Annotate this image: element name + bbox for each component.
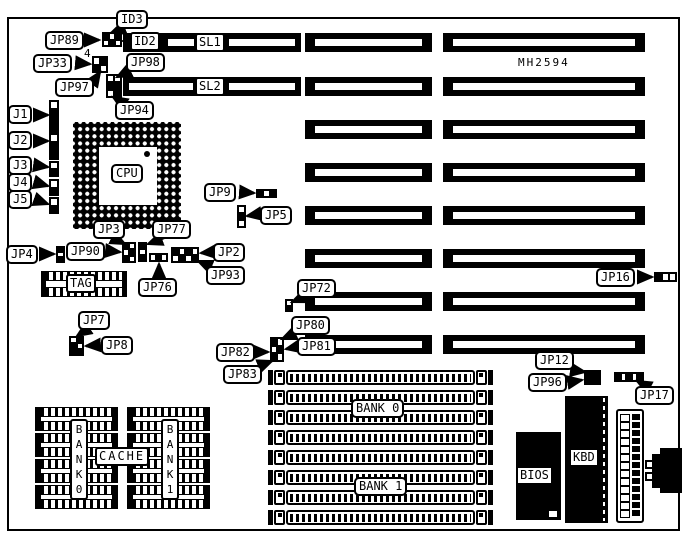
callout-jp80: JP80 bbox=[291, 316, 330, 335]
callout-jp83: JP83 bbox=[223, 365, 262, 384]
callout-leader bbox=[78, 63, 90, 64]
label-bios: BIOS bbox=[516, 466, 553, 485]
label-bank1-simm: BANK 1 bbox=[354, 477, 407, 496]
callout-leader bbox=[240, 192, 254, 193]
callout-id3: ID3 bbox=[116, 10, 148, 29]
callout-jp93: JP93 bbox=[206, 266, 245, 285]
callout-jp33: JP33 bbox=[33, 54, 72, 73]
callout-jp90: JP90 bbox=[66, 242, 105, 261]
callout-leader bbox=[572, 370, 585, 372]
callout-jp81: JP81 bbox=[297, 337, 336, 356]
label-cache: CACHE bbox=[95, 447, 149, 466]
callout-leader bbox=[77, 330, 86, 336]
callout-leader bbox=[34, 199, 48, 204]
callout-jp5: JP5 bbox=[260, 206, 292, 225]
label-cpu: CPU bbox=[111, 164, 143, 183]
callout-leader bbox=[201, 252, 212, 253]
label-bank1-chips: B A N K 1 bbox=[161, 419, 179, 500]
callout-leader bbox=[286, 347, 296, 349]
callout-jp7: JP7 bbox=[78, 311, 110, 330]
label-id2: ID2 bbox=[130, 32, 160, 51]
callout-jp97: JP97 bbox=[55, 78, 94, 97]
callout-jp82: JP82 bbox=[216, 343, 255, 362]
callout-leader bbox=[34, 165, 48, 167]
label-kbd: KBD bbox=[569, 448, 599, 467]
callout-leader bbox=[117, 71, 129, 77]
label-sl1: SL1 bbox=[195, 33, 225, 52]
callout-leader bbox=[34, 182, 48, 186]
callout-jp9: JP9 bbox=[204, 183, 236, 202]
label-sl2: SL2 bbox=[195, 77, 225, 96]
callout-leader bbox=[96, 72, 100, 78]
label-bank0-chips: B A N K 0 bbox=[70, 419, 88, 500]
callout-jp98: JP98 bbox=[126, 53, 165, 72]
callout-jp96: JP96 bbox=[528, 373, 567, 392]
callout-jp3: JP3 bbox=[93, 220, 125, 239]
callout-jp8: JP8 bbox=[101, 336, 133, 355]
callout-j1: J1 bbox=[8, 105, 32, 124]
label-tag: TAG bbox=[66, 274, 96, 293]
label-bank0-simm: BANK 0 bbox=[351, 399, 404, 418]
callout-j5: J5 bbox=[8, 190, 32, 209]
callout-j2: J2 bbox=[8, 131, 32, 150]
callout-jp72: JP72 bbox=[297, 279, 336, 298]
callout-leader bbox=[247, 214, 259, 216]
callout-jp16: JP16 bbox=[596, 268, 635, 287]
callout-jp12: JP12 bbox=[535, 351, 574, 370]
callout-jp94: JP94 bbox=[115, 101, 154, 120]
callout-jp76: JP76 bbox=[138, 278, 177, 297]
callout-leader bbox=[570, 380, 582, 382]
callout-jp89: JP89 bbox=[45, 31, 84, 50]
callout-jp4: JP4 bbox=[6, 245, 38, 264]
callout-jp17: JP17 bbox=[635, 386, 674, 405]
callout-leader bbox=[259, 361, 272, 366]
callout-jp77: JP77 bbox=[152, 220, 191, 239]
callout-jp2: JP2 bbox=[213, 243, 245, 262]
motherboard-diagram: MH2594 4 ID3 JP89 JP33 JP98 JP97 JP94 J1… bbox=[0, 0, 684, 537]
callout-leader bbox=[86, 345, 100, 346]
callout-leader bbox=[110, 251, 120, 252]
